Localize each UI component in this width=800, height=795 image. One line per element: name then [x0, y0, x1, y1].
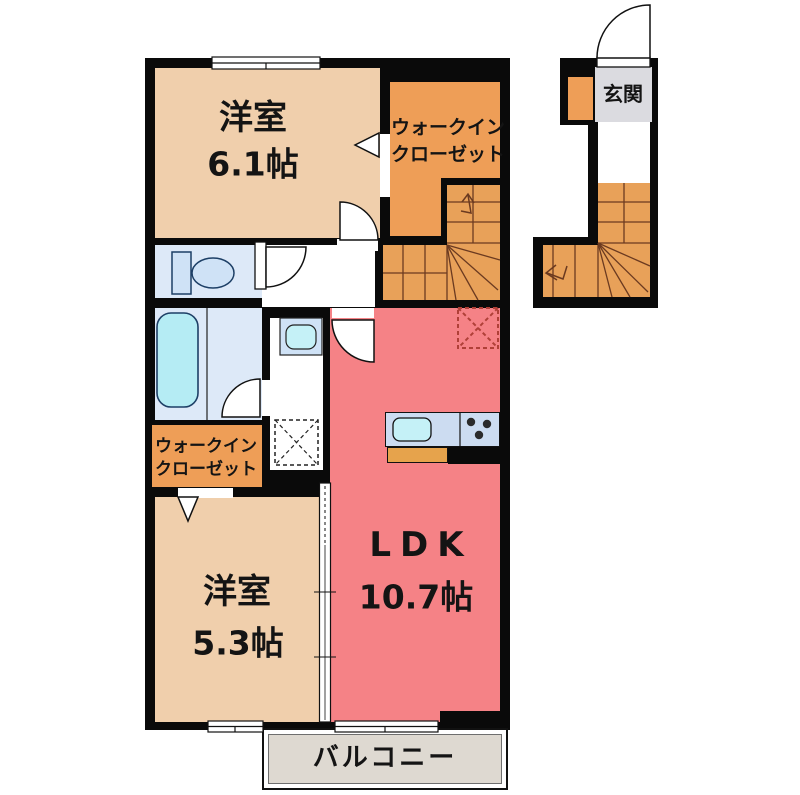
kitchen-counter-base — [387, 447, 448, 463]
main-stairs-vertical-run — [447, 185, 500, 300]
toilet-room-floor — [155, 245, 262, 298]
wic-upper-label-line1: ウォークイン — [391, 119, 505, 138]
hallway-floor — [262, 245, 375, 307]
bathroom-floor — [155, 308, 262, 420]
floorplan-canvas: 洋室 6.1帖 ウォークイン クローゼット 玄関 ウォークイン クローゼット 洋… — [0, 0, 800, 795]
bedroom2-name-label: 洋室 — [203, 575, 271, 609]
kitchen-counter-wall — [448, 447, 500, 464]
ldk-name-label: LDK — [369, 528, 472, 562]
entrance-stairs-vertical-run — [598, 183, 650, 243]
wic-lower-label-line1: ウォークイン — [155, 439, 257, 456]
ldk-floor — [330, 308, 500, 722]
bedroom1-name-label: 洋室 — [219, 101, 287, 135]
wic-lower-label-line2: クローゼット — [155, 462, 257, 479]
wic-upper-label-line2: クローゼット — [391, 146, 505, 165]
washroom-floor — [270, 318, 323, 470]
shoe-cabinet — [568, 77, 593, 120]
main-stairs-left-run — [383, 245, 447, 300]
entrance-stairs-fan — [598, 243, 650, 297]
balcony-label: バルコニー — [313, 745, 457, 771]
entrance-corridor-floor — [598, 122, 650, 183]
walk-in-closet-upper-floor-lower — [390, 178, 441, 236]
ldk-size-label: 10.7帖 — [359, 581, 473, 614]
bedroom2-size-label: 5.3帖 — [192, 627, 283, 660]
entrance-stairs-left-run — [543, 245, 598, 297]
kitchen-counter — [385, 412, 500, 447]
genkan-label: 玄関 — [603, 84, 643, 104]
bedroom1-size-label: 6.1帖 — [207, 148, 298, 181]
entrance-door-arc — [597, 5, 650, 58]
